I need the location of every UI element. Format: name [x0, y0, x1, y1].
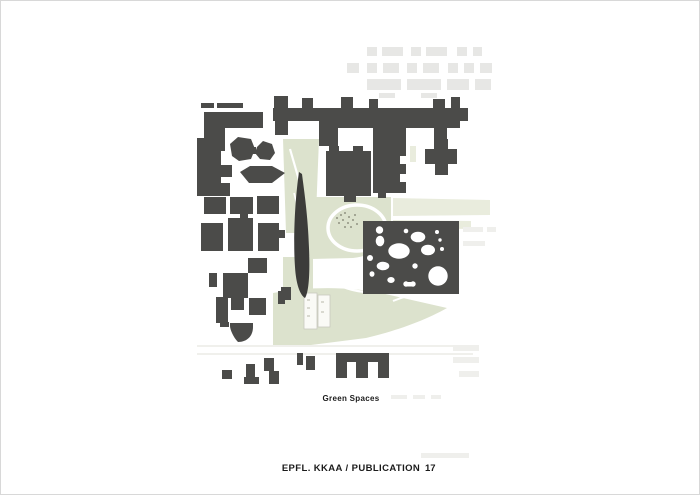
- publication-page: Green Spaces EPFL. KKAA / PUBLICATION 17: [0, 0, 700, 495]
- footer-publication-title: EPFL. KKAA / PUBLICATION: [1, 463, 700, 474]
- footer-page-number: 17: [425, 463, 436, 474]
- figure-caption: Green Spaces: [1, 394, 700, 403]
- site-plan-map: [1, 1, 700, 495]
- page-footer: EPFL. KKAA / PUBLICATION 17: [1, 463, 700, 477]
- rolex-learning-center: [363, 221, 459, 294]
